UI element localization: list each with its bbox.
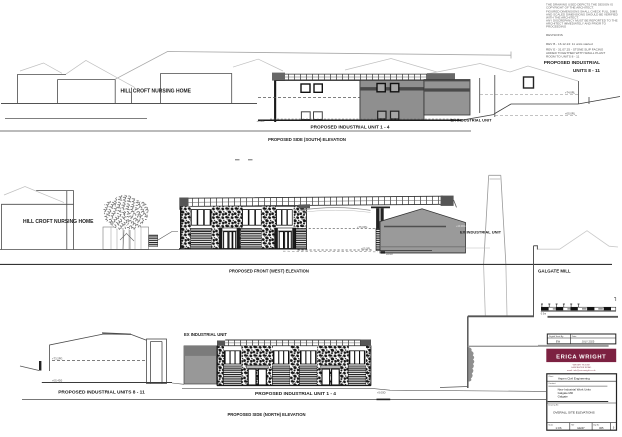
svg-text:PROPOSED INDUSTRIAL: PROPOSED INDUSTRIAL: [544, 60, 600, 65]
svg-text:UNITS 8 - 11: UNITS 8 - 11: [573, 68, 600, 73]
svg-text:005: 005: [599, 426, 604, 430]
svg-text:Ref: Ref: [571, 424, 574, 426]
svg-text:EW: EW: [556, 339, 561, 343]
svg-text:PROPOSED INDUSTRIAL UNIT 1 - 4: PROPOSED INDUSTRIAL UNIT 1 - 4: [255, 391, 336, 397]
svg-text:HILL CROFT NURSING HOME: HILL CROFT NURSING HOME: [23, 219, 94, 225]
svg-text:HILL CROFT NURSING HOME: HILL CROFT NURSING HOME: [121, 88, 192, 94]
svg-text:Contract: Contract: [548, 382, 556, 385]
svg-text:PROPOSED SIDE (SOUTH) ELEVATIO: PROPOSED SIDE (SOUTH) ELEVATION: [268, 137, 346, 142]
svg-text:EX INDUSTRIAL UNIT: EX INDUSTRIAL UNIT: [460, 230, 502, 235]
svg-text:+0S.0RL: +0S.0RL: [565, 112, 576, 116]
svg-text:email: info@ericawright.co.uk: email: info@ericawright.co.uk: [567, 369, 597, 372]
svg-text:+CCL.M00: +CCL.M00: [318, 360, 331, 363]
svg-text:GALGATE MILL: GALGATE MILL: [538, 269, 571, 274]
svg-text:REVISIONS: REVISIONS: [546, 33, 563, 37]
svg-text:Aspen Civil Engineering: Aspen Civil Engineering: [558, 376, 590, 380]
svg-text:+4.88L: +4.88L: [257, 119, 266, 123]
svg-text:+T4.0RL: +T4.0RL: [565, 91, 576, 95]
svg-text:HE/07: HE/07: [577, 426, 585, 430]
svg-text:+0.00: +0.00: [386, 252, 393, 256]
svg-text:PROCEEDING: PROCEEDING: [546, 25, 567, 29]
svg-text:Scale: Scale: [548, 424, 553, 426]
svg-text:+10.0RG: +10.0RG: [456, 225, 466, 228]
svg-text:OVERALL SITE ELEVATIONS: OVERALL SITE ELEVATIONS: [553, 410, 595, 414]
svg-text:EX INDUSTRIAL UNIT: EX INDUSTRIAL UNIT: [184, 332, 227, 337]
svg-text:Date: Date: [572, 335, 577, 338]
svg-text:ROOM TO UNITS 8 - 11: ROOM TO UNITS 8 - 11: [546, 55, 580, 59]
svg-text:0 5m: 0 5m: [541, 313, 546, 316]
svg-text:JULY 2025: JULY 2025: [582, 339, 595, 343]
svg-text:LANCASTER ROAD: LANCASTER ROAD: [571, 366, 591, 369]
svg-text:Digital Sent By: Digital Sent By: [549, 335, 564, 338]
svg-text:PROPOSED INDUSTRIAL UNIT 1 - 4: PROPOSED INDUSTRIAL UNIT 1 - 4: [310, 125, 389, 130]
svg-text:1:OS: 1:OS: [556, 426, 562, 430]
svg-text:+05.0PL: +05.0PL: [361, 246, 371, 250]
svg-text:+T5.0PG: +T5.0PG: [357, 225, 367, 229]
svg-text:ERICA WRIGHT: ERICA WRIGHT: [556, 354, 606, 360]
svg-text:+5.00D: +5.00D: [377, 391, 386, 395]
svg-text:Client: Client: [548, 375, 553, 378]
svg-text:+0S.4D0: +0S.4D0: [52, 378, 63, 382]
svg-text:PROPOSED FRONT (WEST) ELEVATIO: PROPOSED FRONT (WEST) ELEVATION: [229, 269, 309, 274]
svg-text:Galgate: Galgate: [558, 394, 569, 398]
svg-text:Drawing No: Drawing No: [548, 404, 558, 407]
svg-text:PROPOSED SIDE (NORTH) ELEVATIO: PROPOSED SIDE (NORTH) ELEVATION: [227, 412, 305, 417]
svg-text:PROPOSED INDUSTRIAL UNITS 8 -: PROPOSED INDUSTRIAL UNITS 8 - 11: [58, 389, 145, 395]
svg-text:REV B - 16.12.24: 11 units sta: REV B - 16.12.24: 11 units started: [546, 42, 593, 46]
svg-text:+T3.2PG: +T3.2PG: [52, 356, 62, 360]
